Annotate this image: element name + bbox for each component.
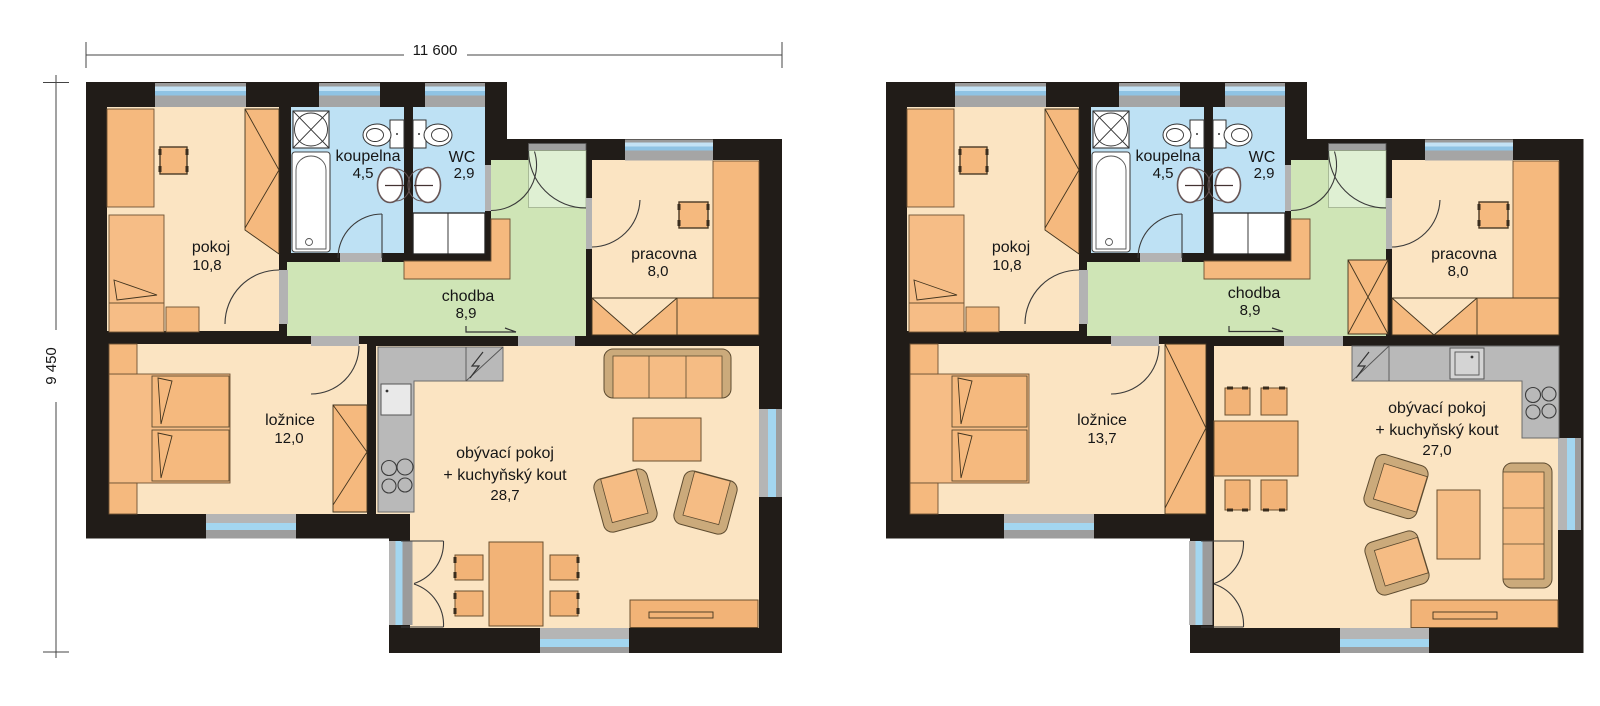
svg-text:9 450: 9 450 [43, 347, 60, 385]
svg-text:koupelna: koupelna [1136, 148, 1201, 165]
svg-text:10,8: 10,8 [192, 257, 221, 274]
svg-text:28,7: 28,7 [490, 487, 519, 504]
svg-text:8,9: 8,9 [1240, 302, 1261, 319]
svg-text:ložnice: ložnice [1077, 412, 1127, 429]
svg-text:obývací pokoj: obývací pokoj [1388, 400, 1486, 417]
svg-text:WC: WC [449, 149, 476, 166]
svg-text:8,9: 8,9 [456, 305, 477, 322]
svg-text:ložnice: ložnice [265, 412, 315, 429]
svg-text:12,0: 12,0 [274, 430, 303, 447]
svg-text:2,9: 2,9 [1254, 165, 1275, 182]
svg-text:pracovna: pracovna [1431, 246, 1497, 263]
svg-text:pokoj: pokoj [192, 239, 230, 256]
svg-text:+ kuchyňský kout: + kuchyňský kout [1375, 422, 1499, 439]
svg-text:4,5: 4,5 [353, 165, 374, 182]
svg-text:13,7: 13,7 [1087, 430, 1116, 447]
svg-text:2,9: 2,9 [454, 165, 475, 182]
svg-text:obývací pokoj: obývací pokoj [456, 445, 554, 462]
svg-text:WC: WC [1249, 149, 1276, 166]
svg-text:10,8: 10,8 [992, 257, 1021, 274]
svg-text:11 600: 11 600 [413, 42, 458, 59]
svg-text:koupelna: koupelna [336, 148, 401, 165]
svg-text:pracovna: pracovna [631, 246, 697, 263]
svg-text:27,0: 27,0 [1422, 442, 1451, 459]
svg-text:chodba: chodba [442, 288, 495, 305]
svg-text:4,5: 4,5 [1153, 165, 1174, 182]
svg-text:8,0: 8,0 [1448, 263, 1469, 280]
svg-text:+ kuchyňský kout: + kuchyňský kout [443, 467, 567, 484]
svg-text:pokoj: pokoj [992, 239, 1030, 256]
svg-text:8,0: 8,0 [648, 263, 669, 280]
svg-text:chodba: chodba [1228, 285, 1281, 302]
